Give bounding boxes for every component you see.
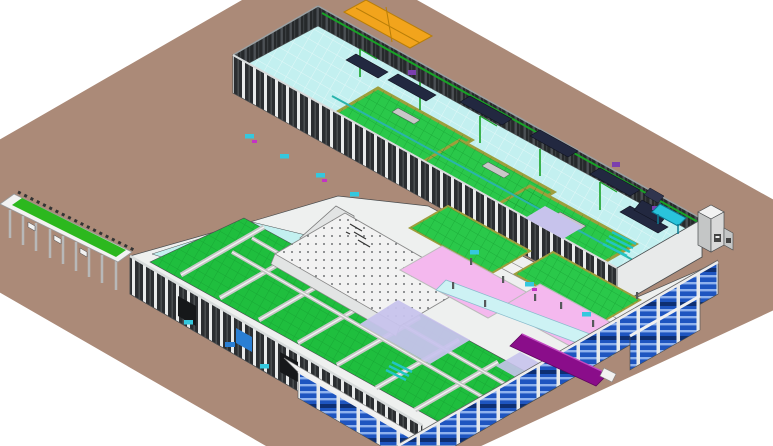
cyan-pallet xyxy=(184,320,193,325)
magenta-pallet xyxy=(252,140,257,143)
cyan-pallet xyxy=(280,154,289,159)
cyan-pallet xyxy=(350,192,359,197)
cyan-pallet xyxy=(582,312,591,317)
cyan-pallet xyxy=(316,173,325,178)
cyan-pallet xyxy=(525,282,534,287)
cyan-pallet xyxy=(245,134,254,139)
cyan-pallet xyxy=(260,364,269,369)
model-viewport[interactable] xyxy=(0,0,773,446)
magenta-pallet xyxy=(532,288,537,291)
cabinet-right-face xyxy=(711,212,724,252)
machine-accent xyxy=(612,162,620,167)
bim-isometric-canvas xyxy=(0,0,773,446)
cyan-pallet xyxy=(470,250,479,255)
machine-accent xyxy=(408,70,416,75)
cabinet-left-face xyxy=(698,212,711,252)
blue-pallet xyxy=(225,342,235,347)
cabinet-small-vent xyxy=(726,238,731,243)
magenta-pallet xyxy=(322,179,327,182)
